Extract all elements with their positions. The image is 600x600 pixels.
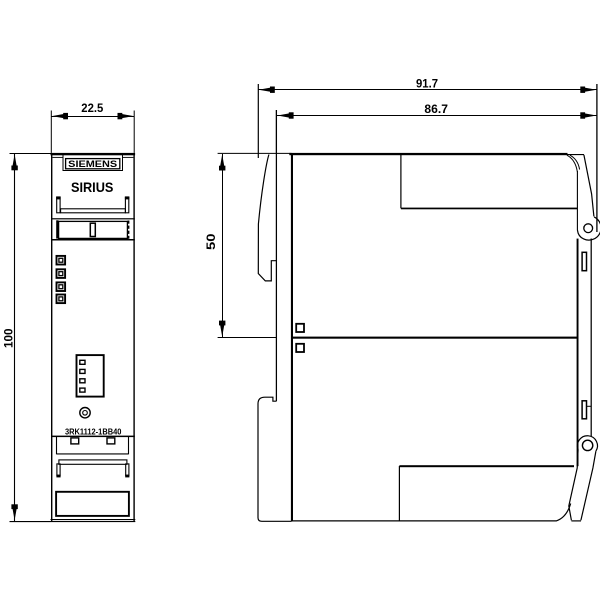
svg-text:SIEMENS: SIEMENS bbox=[68, 159, 117, 169]
svg-text:100: 100 bbox=[3, 329, 15, 349]
svg-text:22.5: 22.5 bbox=[81, 103, 104, 115]
svg-text:SIRIUS: SIRIUS bbox=[71, 179, 114, 195]
svg-text:86.7: 86.7 bbox=[424, 104, 448, 116]
svg-text:91.7: 91.7 bbox=[416, 78, 438, 90]
svg-text:50: 50 bbox=[206, 234, 218, 251]
svg-text:3RK1112-1BB40: 3RK1112-1BB40 bbox=[65, 428, 122, 437]
